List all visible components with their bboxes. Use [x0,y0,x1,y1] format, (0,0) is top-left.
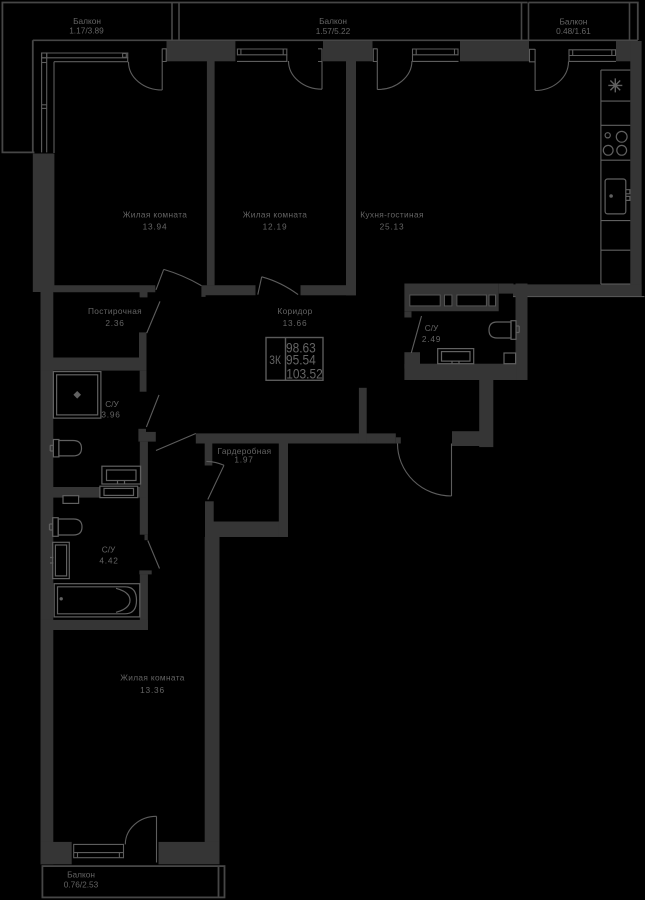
svg-text:Жилая комната: Жилая комната [123,209,188,219]
svg-text:13.94: 13.94 [143,221,168,231]
svg-text:Жилая комната: Жилая комната [120,673,185,683]
svg-text:Балкон: Балкон [319,16,347,26]
svg-text:Жилая комната: Жилая комната [243,209,308,219]
svg-text:0.48/1.61: 0.48/1.61 [556,26,591,36]
svg-text:2.49: 2.49 [422,334,441,344]
svg-text:Коридор: Коридор [277,306,312,316]
svg-text:3К: 3К [269,353,281,367]
svg-text:Балкон: Балкон [67,870,95,880]
svg-text:Балкон: Балкон [559,16,587,26]
svg-text:2.36: 2.36 [105,318,124,328]
svg-text:С/У: С/У [425,323,439,333]
svg-text:Постирочная: Постирочная [88,306,142,316]
svg-text:0.76/2.53: 0.76/2.53 [64,879,99,889]
svg-text:С/У: С/У [105,399,119,409]
svg-text:1.17/3.89: 1.17/3.89 [69,26,104,36]
svg-text:12.19: 12.19 [263,221,288,231]
svg-text:1.97: 1.97 [234,455,253,465]
svg-text:Балкон: Балкон [73,16,101,26]
svg-text:25.13: 25.13 [380,221,405,231]
svg-text:Кухня-гостиная: Кухня-гостиная [360,209,424,219]
svg-text:1.57/5.22: 1.57/5.22 [316,26,351,36]
svg-text:103.52: 103.52 [286,366,323,381]
svg-text:4.42: 4.42 [99,556,118,566]
svg-text:13.66: 13.66 [283,318,308,328]
svg-text:13.36: 13.36 [140,685,165,695]
svg-text:С/У: С/У [102,545,116,555]
svg-text:3.96: 3.96 [101,410,120,420]
